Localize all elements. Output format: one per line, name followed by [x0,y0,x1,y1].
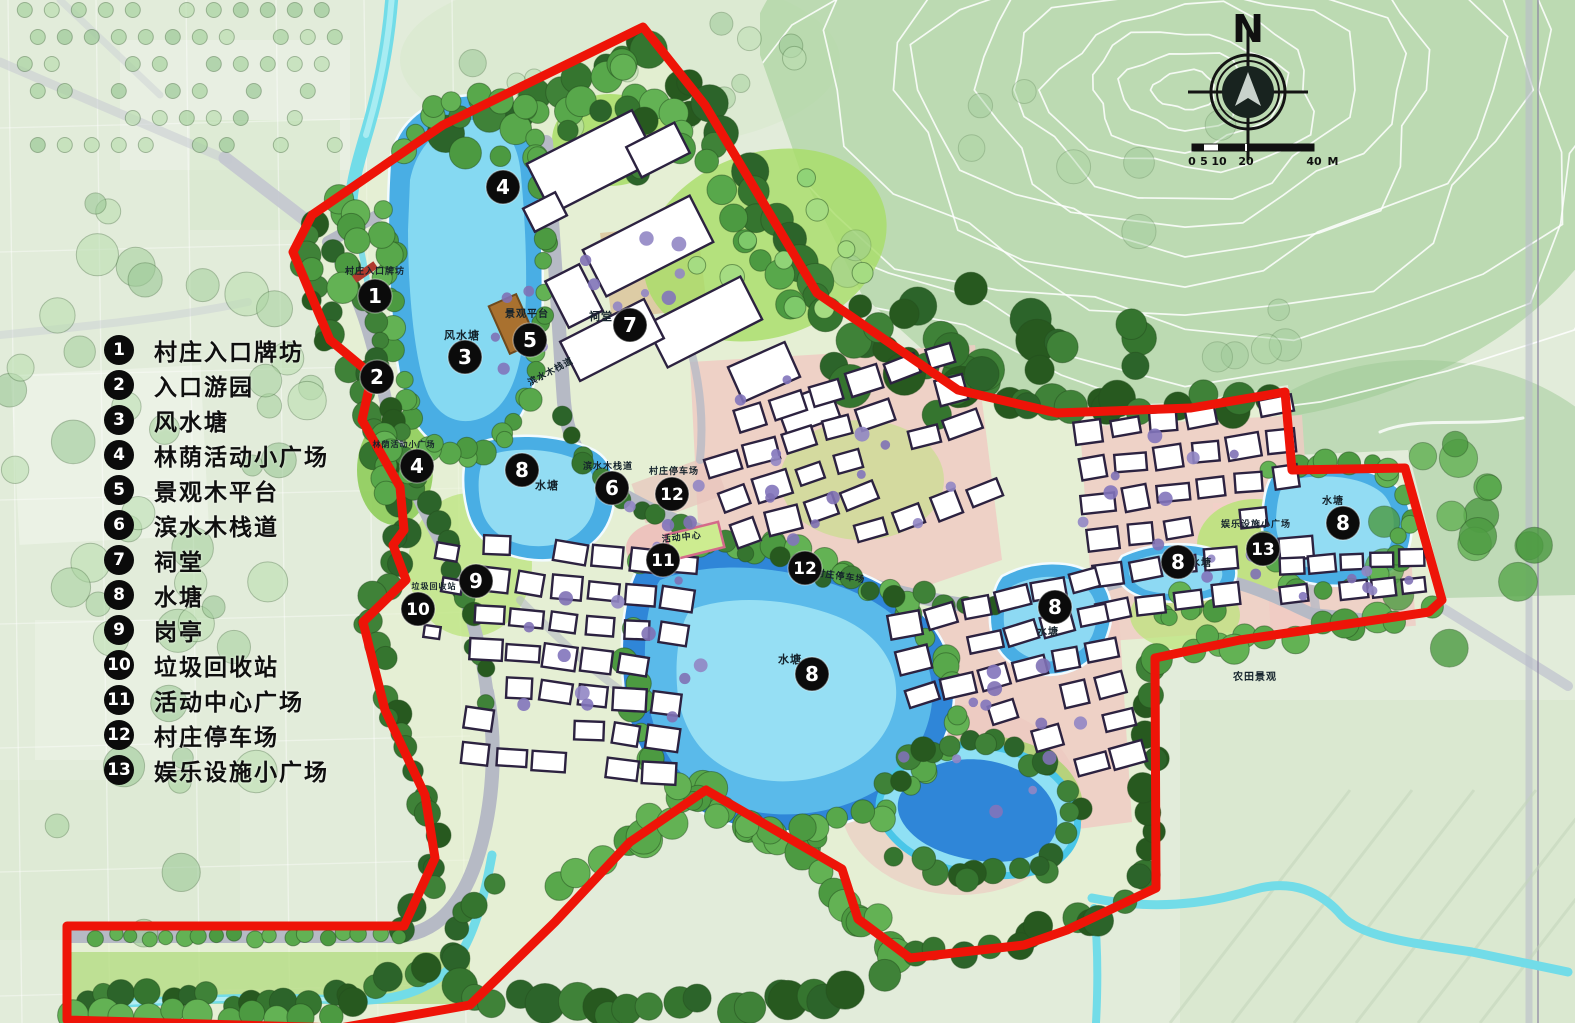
map-marker-number: 5 [523,328,537,352]
building [506,677,532,698]
building [1308,554,1336,574]
building [1114,452,1147,472]
compass-north-label: N [1232,7,1264,51]
map-text-label: 村庄停车场 [649,465,699,477]
building [461,742,490,766]
building [549,611,577,633]
map-marker: 3 [448,340,482,374]
legend-item-label: 村庄停车场 [154,718,279,752]
legend-badge: 7 [104,545,134,575]
building [435,542,459,562]
site-plan: 村庄入口牌坊风水塘景观平台祠堂滨水木栈道水塘滨水木栈道村庄停车场活动中心林荫活动… [0,0,1575,1023]
legend-item: 12村庄停车场 [104,720,329,750]
map-text-label: 农田景观 [1232,670,1277,683]
building [531,751,566,773]
map-marker: 8 [795,657,829,691]
map-marker: 12 [655,477,689,511]
building [1129,557,1162,582]
scale-tick-label: 0 [1188,155,1196,168]
legend-badge: 10 [104,650,134,680]
building [1153,444,1184,471]
building [1052,647,1080,672]
building [423,625,441,639]
map-text-label: 水塘 [1321,494,1344,507]
map-marker: 9 [459,564,493,598]
legend-item: 11活动中心广场 [104,685,329,715]
map-marker-number: 12 [660,485,684,505]
building [1135,594,1165,615]
building [1234,472,1262,493]
building [617,653,648,676]
building [605,758,639,781]
map-marker: 5 [513,323,547,357]
legend-item-label: 景观木平台 [154,473,279,507]
building [483,535,510,555]
building [580,648,613,674]
map-text-label: 景观平台 [505,307,549,320]
building [612,688,646,712]
map-marker-number: 4 [410,454,424,478]
building [497,748,528,767]
building [475,605,505,624]
building [1060,680,1089,709]
map-text-label: 娱乐设施小广场 [1221,518,1291,530]
map-marker-number: 7 [623,313,637,337]
map-marker-number: 3 [458,345,472,369]
map-text-label: 村庄入口牌坊 [345,265,405,277]
legend-badge: 12 [104,720,134,750]
building [642,762,677,785]
legend: 1村庄入口牌坊2入口游园3风水塘4林荫活动小广场5景观木平台6滨水木栈道7祠堂8… [104,335,329,785]
map-marker-number: 1 [368,284,382,308]
building [1196,476,1225,498]
legend-item: 6滨水木栈道 [104,510,329,540]
legend-badge: 6 [104,510,134,540]
building [516,571,545,597]
legend-item-label: 娱乐设施小广场 [154,753,329,787]
building [1212,582,1241,607]
map-text-label: 祠堂 [589,309,613,323]
scale-tick-label: 5 [1200,155,1208,168]
building [1340,554,1363,570]
map-marker-number: 2 [370,365,384,389]
building [1122,484,1150,512]
legend-badge: 2 [104,370,134,400]
building [612,722,641,746]
map-marker-number: 8 [805,662,819,686]
building [574,721,604,741]
legend-item: 2入口游园 [104,370,329,400]
scale-tick-label: 40 [1306,155,1322,168]
scale-tick-label: 20 [1238,155,1254,168]
map-marker-number: 10 [406,600,430,620]
map-marker: 4 [400,449,434,483]
map-marker: 12 [788,551,822,585]
legend-item-label: 入口游园 [154,368,254,402]
legend-item: 10垃圾回收站 [104,650,329,680]
map-marker-number: 8 [515,458,529,482]
legend-item-label: 岗亭 [154,613,204,647]
map-text-label: 滨水木栈道 [583,460,633,472]
building [1128,522,1154,545]
building [1280,557,1305,574]
building [1078,604,1109,627]
map-text-label: 垃圾回收站 [412,581,457,591]
building [625,584,656,607]
map-marker: 2 [360,360,394,394]
legend-item: 9岗亭 [104,615,329,645]
map-marker: 8 [1038,590,1072,624]
building [1086,526,1119,551]
map-marker: 6 [595,471,629,505]
map-marker: 10 [401,592,435,626]
map-marker: 8 [1326,506,1360,540]
building [463,706,494,731]
building [658,622,689,647]
legend-item-label: 祠堂 [154,543,204,577]
legend-badge: 4 [104,440,134,470]
map-marker: 13 [1246,532,1280,566]
legend-item: 8水塘 [104,580,329,610]
building [1174,590,1203,610]
legend-item: 4林荫活动小广场 [104,440,329,470]
building [553,540,588,565]
building [645,725,680,753]
map-text-label: 林荫活动小广场 [373,439,436,449]
legend-item-label: 水塘 [154,578,204,612]
legend-badge: 3 [104,405,134,435]
map-marker-number: 12 [793,559,817,579]
map-marker-number: 13 [1251,540,1275,560]
building [660,586,695,613]
map-marker: 7 [613,308,647,342]
legend-item-label: 村庄入口牌坊 [154,333,304,367]
building [506,644,540,662]
map-marker: 8 [1161,545,1195,579]
legend-item: 1村庄入口牌坊 [104,335,329,365]
building [1164,517,1193,539]
map-marker: 1 [358,279,392,313]
map-marker-number: 9 [469,569,483,593]
map-marker: 8 [505,453,539,487]
building [887,610,923,639]
map-marker: 11 [646,543,680,577]
legend-badge: 9 [104,615,134,645]
scale-tick-label: 10 [1211,155,1227,168]
map-marker-number: 4 [496,175,510,199]
building [962,595,991,619]
legend-item-label: 垃圾回收站 [154,648,279,682]
building [1110,416,1141,437]
legend-badge: 5 [104,475,134,505]
legend-item-label: 滨水木栈道 [154,508,279,542]
map-text-label: 水塘 [1036,625,1059,638]
legend-item: 13娱乐设施小广场 [104,755,329,785]
building [469,638,503,661]
building [1073,419,1103,445]
map-marker-number: 6 [605,476,619,500]
legend-item: 7祠堂 [104,545,329,575]
building [591,545,623,568]
building [1079,455,1107,481]
legend-badge: 8 [104,580,134,610]
legend-item-label: 风水塘 [154,403,229,437]
scale-tick-label: M [1328,155,1339,168]
legend-badge: 11 [104,685,134,715]
building [651,691,682,716]
map-marker-number: 8 [1048,595,1062,619]
map-text-label: 水塘 [535,478,559,492]
legend-item: 3风水塘 [104,405,329,435]
building [586,616,615,637]
legend-badge: 13 [104,755,134,785]
legend-item-label: 活动中心广场 [154,683,304,717]
map-marker: 4 [486,170,520,204]
building [1370,553,1393,567]
legend-item-label: 林荫活动小广场 [154,438,329,472]
building [539,680,573,704]
map-marker-number: 8 [1336,511,1350,535]
legend-item: 5景观木平台 [104,475,329,505]
map-marker-number: 11 [651,551,675,571]
legend-badge: 1 [104,335,134,365]
map-marker-number: 8 [1171,550,1185,574]
building [1399,549,1424,566]
